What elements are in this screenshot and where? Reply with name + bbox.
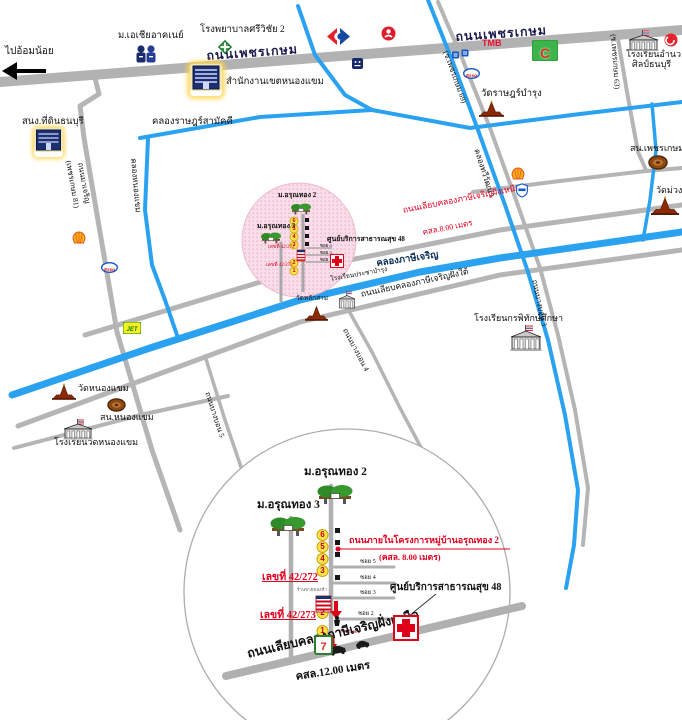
red-logo-icon (381, 26, 396, 46)
wat-nong-khaem-label: วัดหนองแขม (78, 384, 129, 393)
carrefour-icon (326, 26, 351, 52)
mini-stop-5: 5 (289, 226, 299, 232)
inset-stop-3: 3 (316, 566, 329, 575)
inset-soi5-label: ซอย 5 (360, 559, 376, 565)
mini-stop-4: 4 (289, 234, 299, 240)
bigc-text: C (532, 40, 558, 66)
bank-logo-icon (452, 46, 469, 64)
amnuaysilp-school-label-2: ศิลป์ธนบุรี (632, 60, 671, 69)
amnuaysilp-school-icon (628, 30, 659, 56)
district-office-label: สำนักงานเขตหนองแขม (226, 78, 324, 88)
wat-nong-khaem-icon (51, 383, 77, 405)
inset-stop-2: 2 (316, 608, 329, 617)
school-wat-nong-khaem-icon (63, 419, 93, 445)
hospital-icon (216, 38, 234, 61)
inset-soi4-label: ซอย 4 (360, 575, 376, 581)
kornpitak-school-icon (510, 325, 542, 357)
mini-stop-1: 1 (289, 268, 299, 274)
wat-muang-label: วัดม่วง (656, 186, 682, 195)
shield-icon (516, 183, 528, 203)
wat-lak-sam-icon (304, 305, 329, 326)
store-logo-icon (665, 34, 678, 47)
map-canvas: ไปอ้อมน้อย ม.เอเชียอาคเนย์ โรงพยาบาลศรีว… (0, 0, 682, 720)
mini-soi4-label: ซอย 4 (320, 244, 332, 249)
navy-badge-icon (352, 56, 363, 74)
rat-samakkhi-canal-label: คลองราษฎร์สามัคคี (152, 118, 233, 128)
inset-addr273-label: เลขที่ 42/273 (260, 610, 316, 621)
wat-muang-icon (650, 196, 680, 220)
mini-stop-3: 3 (289, 242, 299, 248)
inset-health48-cross-icon (393, 615, 419, 641)
wat-lak-sam-label: วัดหลักสาม (296, 296, 328, 303)
inset-internal-road-label: ถนนภายในโครงการหมู่บ้านอรุณทอง 2 (349, 536, 499, 545)
esso-text: Esso (463, 66, 480, 84)
inset-internal-spec-label: (คสล. 8.00 เมตร) (379, 553, 441, 562)
wat-rat-bamrung-icon (478, 100, 505, 122)
mini-health48-label: ศูนย์บริการสาธารณสุข 48 (327, 236, 405, 243)
inset-health48-label: ศูนย์บริการสาธารณสุข 48 (390, 583, 501, 594)
hospital-label: โรงพยาบาลศรีวิชัย 2 (200, 26, 285, 36)
shell-icon-left (72, 231, 86, 250)
prachabamrung-school-icon (338, 291, 356, 315)
police-phetkasem-label: สน.เพชรเกษม (630, 144, 682, 153)
bigc-icon: C (532, 40, 558, 66)
inset-stop-1: 1 (316, 626, 329, 635)
seven-eleven-text: 7 (320, 641, 326, 653)
esso-icon-left: Esso (101, 260, 118, 278)
jet-icon: JET (123, 321, 141, 339)
esso-text-left: Esso (101, 260, 118, 278)
district-office-icon (190, 64, 222, 96)
esso-icon: Esso (463, 66, 480, 84)
inset-stop-5: 5 (316, 542, 329, 551)
police-nong-khaem-icon (107, 398, 126, 417)
mini-stop-2: 2 (289, 260, 299, 266)
inset-soi2-label: ซอย 2 (358, 611, 374, 617)
inset-arunthong2-gate-icon (316, 484, 354, 509)
land-office-label: สนง.ที่ดินธนบุรี (22, 118, 84, 128)
mini-arunthong2-label: ม.อรุณทอง 2 (278, 192, 316, 199)
wat-rat-bamrung-label: วัดราษฎร์บำรุง (481, 90, 542, 100)
asia-university-label: ม.เอเชียอาคเนย์ (118, 32, 184, 42)
inset-shop-note-label: ร้านขายของชำ (297, 588, 327, 593)
mini-arunthong3-gate-icon (260, 231, 282, 249)
inset-arunthong3-label: ม.อรุณทอง 3 (257, 499, 320, 511)
police-phetkasem-icon (648, 155, 668, 175)
kornpitak-school-label: โรงเรียนกรพิทักษ์ศึกษา (474, 314, 563, 323)
mini-health48-cross-icon (330, 254, 344, 268)
seven-eleven-icon: 7 (314, 635, 333, 655)
inset-addr272-label: เลขที่ 42/272 (262, 572, 318, 583)
jet-text: JET (123, 321, 141, 339)
university-icon (135, 44, 157, 69)
mini-arunthong2-gate-icon (290, 202, 312, 220)
inset-soi3-label: ซอย 3 (360, 590, 376, 596)
map-graphics (0, 0, 682, 720)
tmb-bank-label: TMB (482, 39, 502, 48)
inset-stop-4: 4 (316, 554, 329, 563)
land-office-icon (34, 128, 63, 157)
inset-arunthong2-label: ม.อรุณทอง 2 (304, 466, 367, 478)
inset-arunthong3-gate-icon (269, 516, 307, 541)
direction-west-label: ไปอ้อมน้อย (5, 47, 54, 58)
inset-stop-6: 6 (316, 530, 329, 539)
